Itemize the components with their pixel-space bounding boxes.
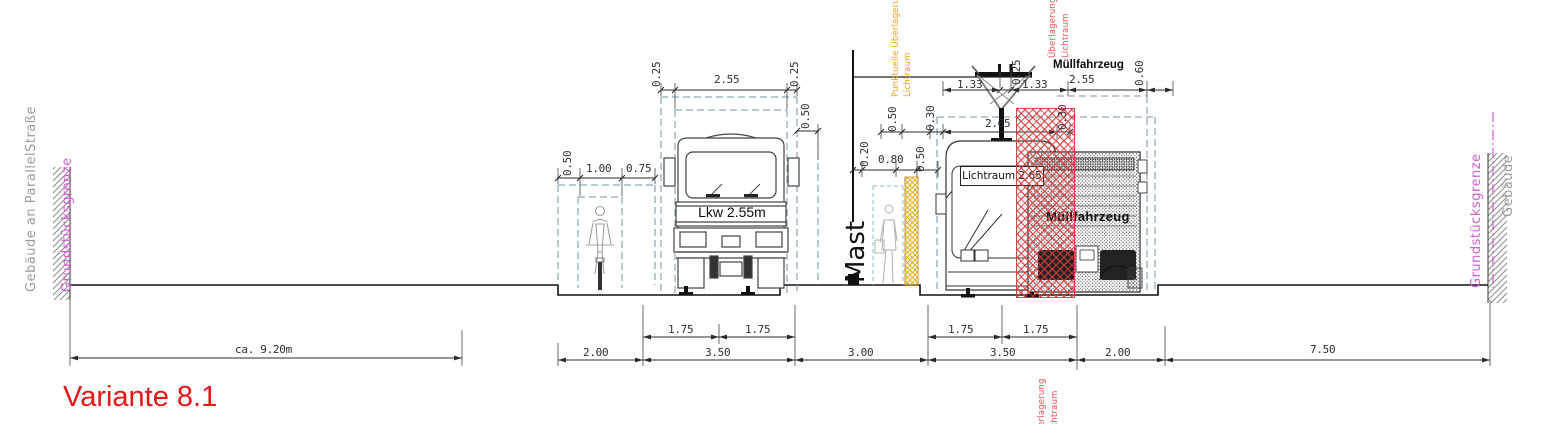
pedestrian-envelope bbox=[873, 186, 903, 285]
muellfahrzeug-top-label: Müllfahrzeug bbox=[1053, 59, 1124, 71]
cyclist-figure bbox=[586, 207, 614, 291]
clearance-overlap-hatch bbox=[1016, 108, 1075, 298]
right-building-wall bbox=[1488, 153, 1507, 303]
cross-section-drawing: Gebäude an ParallelStraße Grundstücksgre… bbox=[0, 0, 1549, 424]
drawing-title: Variante 8.1 bbox=[63, 381, 217, 414]
dim-bus-margin-right: 0.30 bbox=[1056, 100, 1069, 130]
left-building-wall bbox=[53, 167, 70, 300]
pedestrian-figure bbox=[875, 205, 897, 283]
lkw-label: Lkw 2.55m bbox=[678, 204, 786, 220]
orange-overlap-strip bbox=[905, 177, 918, 285]
